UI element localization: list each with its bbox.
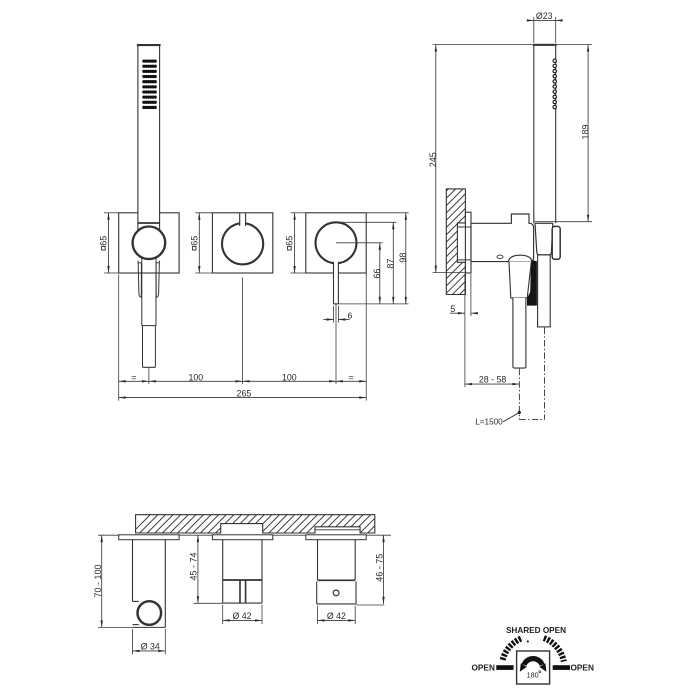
svg-text:45 - 74: 45 - 74 xyxy=(189,552,199,580)
svg-text:OPEN: OPEN xyxy=(570,662,594,672)
svg-text:6: 6 xyxy=(348,310,353,320)
svg-text:65: 65 xyxy=(99,236,109,246)
svg-text:65: 65 xyxy=(285,236,295,246)
svg-text:OPEN: OPEN xyxy=(471,662,495,672)
svg-text:87: 87 xyxy=(386,259,396,269)
svg-text:Ø 34: Ø 34 xyxy=(141,641,160,651)
svg-text:245: 245 xyxy=(428,152,438,167)
svg-text:46 - 75: 46 - 75 xyxy=(374,554,384,582)
svg-text:Ø23: Ø23 xyxy=(536,11,553,21)
svg-text:100: 100 xyxy=(282,372,297,382)
svg-text:98: 98 xyxy=(398,253,408,263)
svg-text:70 - 100: 70 - 100 xyxy=(93,564,103,597)
svg-text:5: 5 xyxy=(450,304,455,314)
svg-text:180: 180 xyxy=(527,671,539,680)
svg-text:28 - 58: 28 - 58 xyxy=(479,375,506,385)
svg-text:65: 65 xyxy=(189,236,199,246)
svg-text:100: 100 xyxy=(188,372,203,382)
svg-text:Ø 42: Ø 42 xyxy=(232,611,251,621)
svg-text:=: = xyxy=(131,372,136,382)
svg-text:189: 189 xyxy=(580,124,590,139)
svg-text:265: 265 xyxy=(237,389,252,399)
svg-text:L=1500: L=1500 xyxy=(475,417,503,426)
svg-text:=: = xyxy=(349,372,354,382)
svg-text:SHARED OPEN: SHARED OPEN xyxy=(506,626,566,635)
svg-text:Ø 42: Ø 42 xyxy=(327,611,346,621)
svg-text:66: 66 xyxy=(372,269,382,279)
